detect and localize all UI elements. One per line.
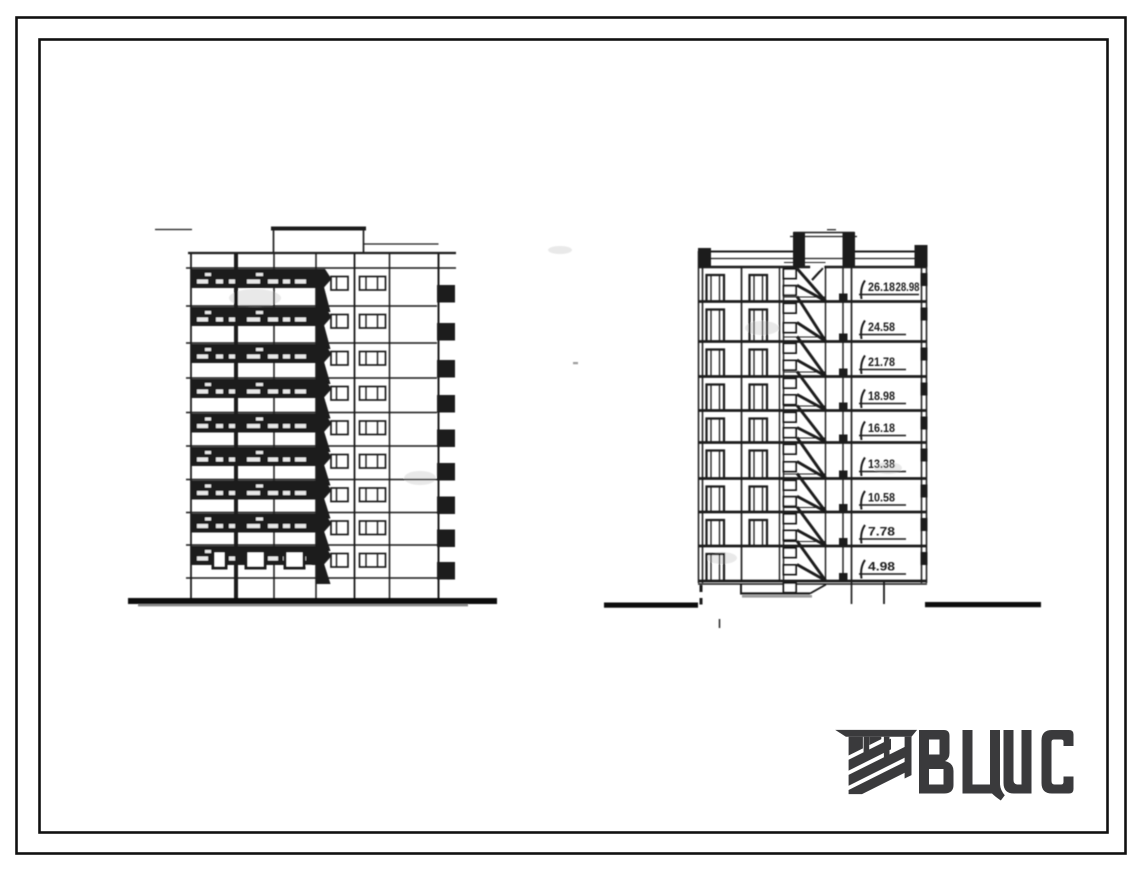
svg-text:26.18: 26.18 <box>868 280 895 294</box>
svg-text:16.18: 16.18 <box>868 421 895 435</box>
svg-text:7.78: 7.78 <box>868 525 895 539</box>
svg-text:10.58: 10.58 <box>868 491 895 505</box>
svg-text:24.58: 24.58 <box>868 320 895 334</box>
svg-text:28.98: 28.98 <box>896 280 920 294</box>
svg-text:13.38: 13.38 <box>868 457 895 471</box>
svg-text:4.98: 4.98 <box>868 560 895 574</box>
svg-text:18.98: 18.98 <box>868 389 895 403</box>
svg-text:21.78: 21.78 <box>868 355 895 369</box>
